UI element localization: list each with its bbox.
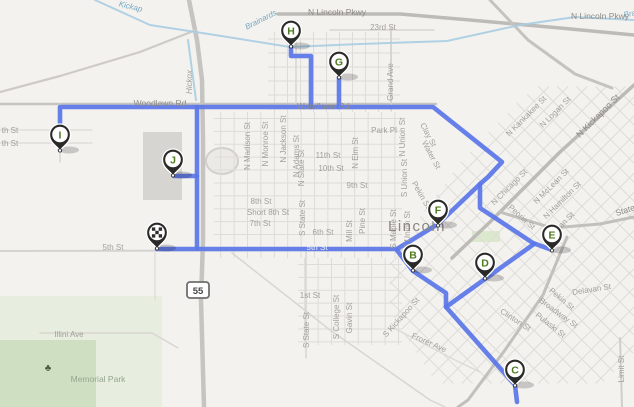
road-label: S Union St (400, 158, 409, 197)
road-label: Mill St (345, 219, 354, 242)
road-label: Woodlawn Rd (297, 101, 350, 111)
road-label: th St (2, 126, 19, 135)
marker-tip (337, 76, 340, 79)
road-label: S State St (302, 311, 311, 348)
road-label: Hickox (185, 69, 194, 94)
road-label: 11th St (316, 151, 342, 160)
marker-letter: D (481, 257, 489, 269)
road-label: N Jackson St (279, 115, 288, 163)
road-label: 6th St (313, 228, 335, 237)
road-label: 5th St (307, 243, 329, 252)
road-label: N Elm St (351, 136, 360, 168)
highway-55-shield: 55 (187, 282, 209, 298)
marker-letter: C (511, 364, 519, 376)
road-label: 23rd St (370, 23, 397, 32)
marker-tip (289, 45, 292, 48)
road-label: 1st St (300, 291, 321, 300)
road-label: Gavin St (345, 302, 354, 333)
marker-letter: I (59, 129, 62, 141)
road-label: 5th St (103, 243, 125, 252)
marker-tip (436, 224, 439, 227)
road-label: S State St (298, 199, 307, 236)
road-label: Short 8th St (247, 208, 290, 217)
marker-tip (411, 269, 414, 272)
marker-tip (58, 149, 61, 152)
marker-tip (171, 174, 174, 177)
road-label: N Lincoln Pkwy (571, 11, 630, 21)
road-label: Woodlawn Rd (134, 98, 187, 108)
marker-letter: F (435, 204, 442, 216)
marker-letter: B (409, 249, 417, 261)
highway-55-label: 55 (193, 286, 204, 297)
checkered-flag-icon (152, 227, 155, 230)
road-label: Park Pl (371, 126, 397, 135)
road-label: S College St (332, 294, 341, 339)
road-label: Memorial Park (71, 374, 127, 384)
checkered-flag-icon (159, 234, 162, 237)
road-label: N Monroe St (261, 121, 270, 167)
road-label: 7th St (250, 219, 272, 228)
checkered-flag-icon (159, 227, 162, 230)
road-label: 10th St (318, 164, 344, 173)
map-viewport[interactable]: KickapBrainardsBrainardsN Lincoln PkwyN … (0, 0, 634, 407)
road-label: Limit St (617, 355, 626, 382)
road-label: th St (2, 139, 19, 148)
map-canvas[interactable]: KickapBrainardsBrainardsN Lincoln PkwyN … (0, 0, 634, 407)
road-label: Grand Ave (386, 63, 395, 101)
checkered-flag-icon (155, 231, 158, 234)
marker-letter: J (170, 154, 176, 166)
road-label: Pine St (358, 207, 367, 234)
marker-tip (155, 247, 158, 250)
marker-letter: H (287, 25, 295, 37)
marker-tip (550, 249, 553, 252)
road-label: N Union St (398, 117, 407, 156)
road-label: 8th St (251, 197, 273, 206)
road-label: 9th St (347, 181, 369, 190)
marker-tip (513, 384, 516, 387)
marker-letter: E (548, 229, 555, 241)
tree-icon: ♣ (45, 363, 52, 374)
marker-tip (483, 277, 486, 280)
road-label: N Lincoln Pkwy (308, 7, 367, 17)
marker-letter: G (335, 56, 343, 68)
road-label: N State St (297, 149, 306, 186)
road-label: Illini Ave (54, 330, 84, 339)
road-label: N Madison St (243, 121, 252, 170)
checkered-flag-icon (152, 234, 155, 237)
